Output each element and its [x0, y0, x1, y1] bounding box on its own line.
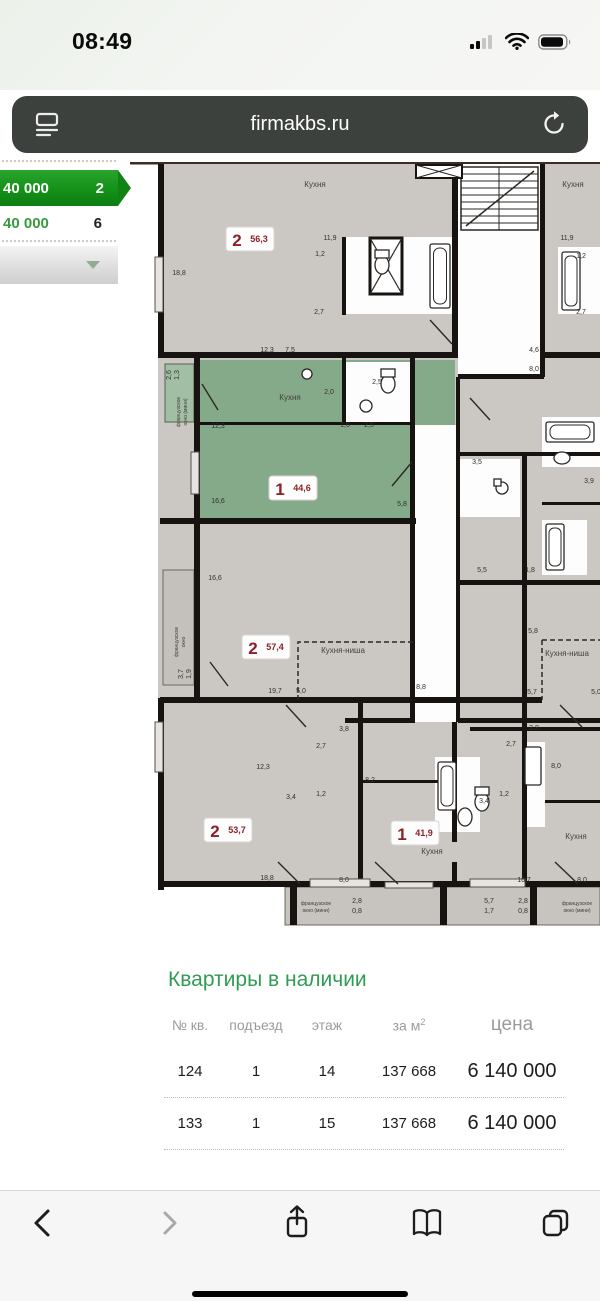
section-title: Квартиры в наличии — [168, 968, 367, 992]
entrance: 1 — [216, 1101, 296, 1146]
svg-text:1,2: 1,2 — [499, 791, 509, 798]
svg-text:2: 2 — [232, 231, 241, 250]
svg-text:3,4: 3,4 — [479, 798, 489, 805]
reader-icon[interactable] — [34, 110, 60, 143]
price-filter-list: 40 000 2 40 000 6 — [0, 160, 118, 284]
reload-icon[interactable] — [540, 110, 568, 143]
svg-text:2,8: 2,8 — [352, 898, 362, 905]
address-bar[interactable]: firmakbs.ru — [12, 96, 588, 153]
back-icon[interactable] — [26, 1203, 60, 1248]
apartment-badge[interactable]: 141,9 — [391, 821, 439, 845]
svg-text:Кухня: Кухня — [279, 393, 300, 402]
battery-icon — [538, 34, 572, 55]
col-floor: этаж — [296, 1009, 358, 1043]
svg-text:8,0: 8,0 — [339, 877, 349, 884]
svg-text:Кухня: Кухня — [421, 847, 442, 856]
svg-text:французское: французское — [174, 627, 180, 658]
svg-text:2,7: 2,7 — [314, 309, 324, 316]
svg-text:2,0: 2,0 — [324, 389, 334, 396]
svg-text:0,8: 0,8 — [352, 908, 362, 915]
floorplan[interactable]: 18,812,37,511,91,22,711,91,22,74,68,02,6… — [130, 162, 600, 930]
svg-text:16,6: 16,6 — [211, 498, 225, 505]
svg-text:французское: французское — [176, 397, 182, 428]
svg-text:окно: окно — [181, 637, 187, 648]
svg-text:3,5: 3,5 — [472, 459, 482, 466]
url-text: firmakbs.ru — [251, 113, 350, 136]
svg-text:окно (мини): окно (мини) — [563, 908, 590, 914]
apartment-badge[interactable]: 256,3 — [226, 227, 274, 251]
apt-number: 124 — [164, 1049, 216, 1094]
svg-text:3,4: 3,4 — [286, 794, 296, 801]
stairwell — [461, 167, 538, 230]
col-number: № кв. — [164, 1009, 216, 1043]
svg-text:1: 1 — [397, 825, 406, 844]
svg-text:2,7: 2,7 — [506, 741, 516, 748]
svg-text:56,3: 56,3 — [250, 234, 268, 244]
svg-text:0,8: 0,8 — [518, 908, 528, 915]
svg-text:5,7: 5,7 — [527, 689, 537, 696]
count-badge: 2 — [96, 180, 104, 197]
svg-text:Кухня: Кухня — [304, 180, 325, 189]
svg-text:2,6: 2,6 — [166, 370, 173, 380]
svg-text:7,5: 7,5 — [285, 347, 295, 354]
svg-text:Кухня: Кухня — [565, 832, 586, 841]
svg-text:окно (мини): окно (мини) — [183, 398, 189, 425]
svg-text:12,3: 12,3 — [260, 347, 274, 354]
table-row[interactable]: 133 1 15 137 668 6 140 000 — [164, 1098, 564, 1149]
table-row[interactable]: 124 1 14 137 668 6 140 000 — [164, 1046, 564, 1097]
svg-text:5,0: 5,0 — [296, 688, 306, 695]
svg-text:окно (мини): окно (мини) — [302, 908, 329, 914]
count-badge: 6 — [94, 215, 102, 232]
svg-text:1,7: 1,7 — [484, 908, 494, 915]
svg-text:3,7: 3,7 — [178, 669, 185, 679]
col-entrance: подъезд — [216, 1009, 296, 1043]
price-per-m2: 137 668 — [358, 1049, 460, 1094]
floor: 15 — [296, 1101, 358, 1146]
svg-text:4,6: 4,6 — [529, 347, 539, 354]
apartments-table: № кв. подъезд этаж за м2 цена 124 1 14 1… — [164, 1006, 564, 1150]
divider — [164, 1149, 564, 1150]
col-per-m2: за м2 — [358, 1009, 460, 1044]
svg-text:12,3: 12,3 — [256, 764, 270, 771]
cellular-signal-icon — [470, 34, 496, 55]
price-label: 40 000 — [3, 215, 49, 232]
svg-text:12,3: 12,3 — [211, 423, 225, 430]
share-icon[interactable] — [279, 1203, 315, 1248]
svg-text:3,8: 3,8 — [339, 726, 349, 733]
svg-text:1,3: 1,3 — [174, 370, 181, 380]
svg-text:16,6: 16,6 — [208, 575, 222, 582]
table-header-row: № кв. подъезд этаж за м2 цена — [164, 1006, 564, 1046]
svg-text:2,7: 2,7 — [316, 743, 326, 750]
svg-text:1,8: 1,8 — [525, 567, 535, 574]
floor: 14 — [296, 1049, 358, 1094]
svg-text:18,8: 18,8 — [260, 875, 274, 882]
svg-text:5,8: 5,8 — [397, 501, 407, 508]
svg-text:11,9: 11,9 — [323, 235, 336, 242]
home-indicator[interactable] — [192, 1291, 408, 1297]
price-per-m2: 137 668 — [358, 1101, 460, 1146]
apartment-badge[interactable]: 253,7 — [204, 818, 252, 842]
svg-text:8,0: 8,0 — [529, 366, 539, 373]
svg-text:2,5: 2,5 — [364, 422, 374, 429]
svg-text:53,7: 53,7 — [228, 825, 246, 835]
svg-text:2,8: 2,8 — [518, 898, 528, 905]
svg-text:5,8: 5,8 — [528, 628, 538, 635]
svg-text:1,9: 1,9 — [186, 669, 193, 679]
divider — [2, 160, 116, 162]
svg-text:8,2: 8,2 — [365, 777, 375, 784]
svg-text:3,8: 3,8 — [529, 725, 539, 732]
divider — [2, 240, 116, 242]
bookmarks-icon[interactable] — [408, 1203, 446, 1248]
svg-text:2: 2 — [210, 822, 219, 841]
apt-number: 133 — [164, 1101, 216, 1146]
svg-text:1,2: 1,2 — [316, 791, 326, 798]
web-page: 40 000 2 40 000 6 — [0, 160, 600, 1190]
svg-text:2,5: 2,5 — [372, 379, 382, 386]
svg-text:1,6: 1,6 — [340, 422, 350, 429]
svg-text:1: 1 — [275, 480, 284, 499]
price-list-item-selected[interactable]: 40 000 2 — [0, 170, 118, 206]
svg-text:2,7: 2,7 — [576, 309, 586, 316]
svg-text:5,5: 5,5 — [477, 567, 487, 574]
safari-toolbar — [0, 1190, 600, 1301]
svg-text:57,4: 57,4 — [266, 642, 284, 652]
svg-text:французское: французское — [562, 901, 593, 907]
chevron-down-icon — [86, 261, 100, 269]
status-bar: 08:49 — [0, 0, 600, 90]
svg-text:8,0: 8,0 — [577, 877, 587, 884]
svg-text:19,7: 19,7 — [268, 688, 282, 695]
svg-text:16,7: 16,7 — [517, 877, 531, 884]
price-label: 40 000 — [3, 180, 49, 197]
svg-text:5,0: 5,0 — [591, 689, 600, 696]
svg-text:41,9: 41,9 — [415, 828, 433, 838]
svg-text:французское: французское — [301, 901, 332, 907]
svg-text:5,7: 5,7 — [484, 898, 494, 905]
price: 6 140 000 — [460, 1046, 564, 1097]
apartment-badge[interactable]: 144,6 — [269, 476, 317, 500]
tabs-icon[interactable] — [538, 1203, 574, 1248]
svg-text:1,2: 1,2 — [576, 253, 586, 260]
svg-text:44,6: 44,6 — [293, 483, 311, 493]
clock: 08:49 — [72, 28, 132, 55]
expand-button[interactable] — [0, 246, 118, 284]
price-list-item[interactable]: 40 000 6 — [0, 206, 118, 240]
col-price: цена — [460, 1006, 564, 1046]
svg-text:Кухня-ниша: Кухня-ниша — [545, 649, 589, 658]
entrance: 1 — [216, 1049, 296, 1094]
price: 6 140 000 — [460, 1098, 564, 1149]
svg-text:11,9: 11,9 — [560, 235, 573, 242]
svg-text:1,2: 1,2 — [315, 251, 325, 258]
svg-text:Кухня-ниша: Кухня-ниша — [321, 646, 365, 655]
svg-text:2: 2 — [248, 639, 257, 658]
forward-icon[interactable] — [153, 1203, 187, 1248]
svg-text:8,0: 8,0 — [551, 763, 561, 770]
svg-text:18,8: 18,8 — [172, 270, 186, 277]
apartment-badge[interactable]: 257,4 — [242, 635, 290, 659]
svg-text:Кухня: Кухня — [562, 180, 583, 189]
svg-text:8,8: 8,8 — [416, 684, 426, 691]
svg-text:3,9: 3,9 — [584, 478, 594, 485]
wifi-icon — [505, 33, 529, 55]
